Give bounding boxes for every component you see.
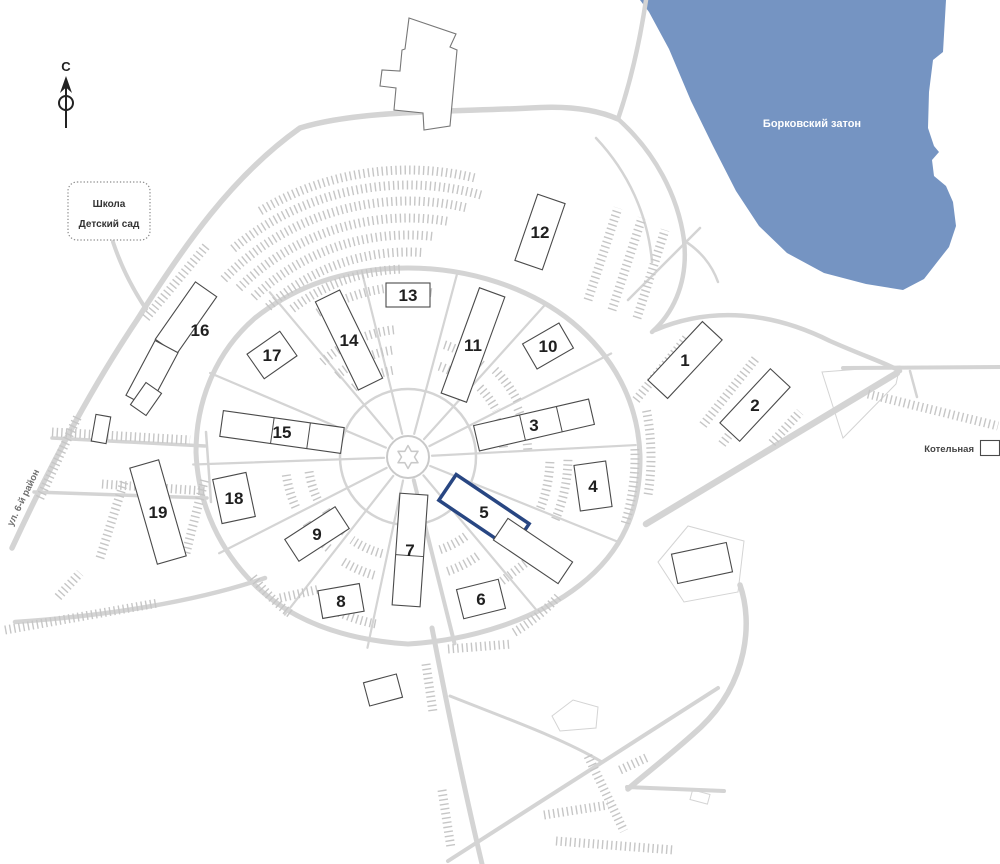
parking-comb: [58, 573, 80, 597]
building-number-11: 11: [464, 336, 482, 355]
parking-comb: [544, 805, 608, 815]
compass-north-icon: С: [59, 59, 73, 128]
building-block: [671, 543, 732, 584]
compass-north-label: С: [61, 59, 71, 74]
building-number-2: 2: [750, 396, 759, 415]
building-16[interactable]: [155, 282, 216, 354]
parking-comb: [555, 460, 568, 520]
boiler-label: Котельная: [924, 444, 974, 455]
building-number-4: 4: [588, 477, 598, 496]
building-number-16: 16: [191, 321, 210, 340]
building-number-19: 19: [149, 503, 168, 522]
parking-comb: [341, 560, 374, 575]
boiler-building: [981, 441, 1000, 456]
building-number-17: 17: [263, 346, 282, 365]
parking-comb: [588, 208, 618, 300]
parking-comb: [438, 536, 465, 550]
site-plan-map: Борковский затон: [0, 0, 1000, 864]
building-number-6: 6: [476, 590, 485, 609]
building-number-1: 1: [680, 351, 689, 370]
parking-comb: [495, 370, 518, 401]
parking-comb: [352, 540, 382, 554]
school-label: Школа: [93, 199, 126, 210]
parking-comb: [647, 411, 651, 495]
building-number-3: 3: [529, 416, 538, 435]
building-block: [363, 674, 402, 706]
building-number-8: 8: [336, 592, 345, 611]
parking-comb: [540, 462, 550, 510]
parking-comb: [448, 644, 512, 649]
building-number-7: 7: [405, 541, 414, 560]
parking-comb: [426, 664, 433, 712]
parking-comb: [447, 556, 477, 571]
building-number-9: 9: [312, 525, 321, 544]
water-area: [640, 0, 956, 290]
parking-comb: [186, 478, 205, 553]
school-legend: Школа Детский сад: [68, 182, 150, 240]
parking-comb: [556, 841, 674, 850]
building-number-13: 13: [399, 286, 418, 305]
parking-comb: [637, 230, 665, 318]
water-label: Борковский затон: [763, 118, 861, 130]
central-roundabout: [387, 436, 429, 478]
parking-comb: [868, 394, 998, 426]
parking-comb: [286, 474, 295, 507]
building-number-5: 5: [479, 503, 488, 522]
building-number-14: 14: [340, 331, 359, 350]
building-number-15: 15: [273, 423, 292, 442]
parking-comb: [309, 469, 318, 499]
building-number-18: 18: [225, 489, 244, 508]
kindergarten-label: Детский сад: [79, 219, 140, 230]
parking-comb: [442, 790, 451, 848]
parking-comb: [612, 218, 642, 310]
parking-comb: [480, 388, 496, 411]
building-number-12: 12: [531, 223, 550, 242]
building-number-10: 10: [539, 337, 558, 356]
parking-comb: [620, 757, 648, 770]
